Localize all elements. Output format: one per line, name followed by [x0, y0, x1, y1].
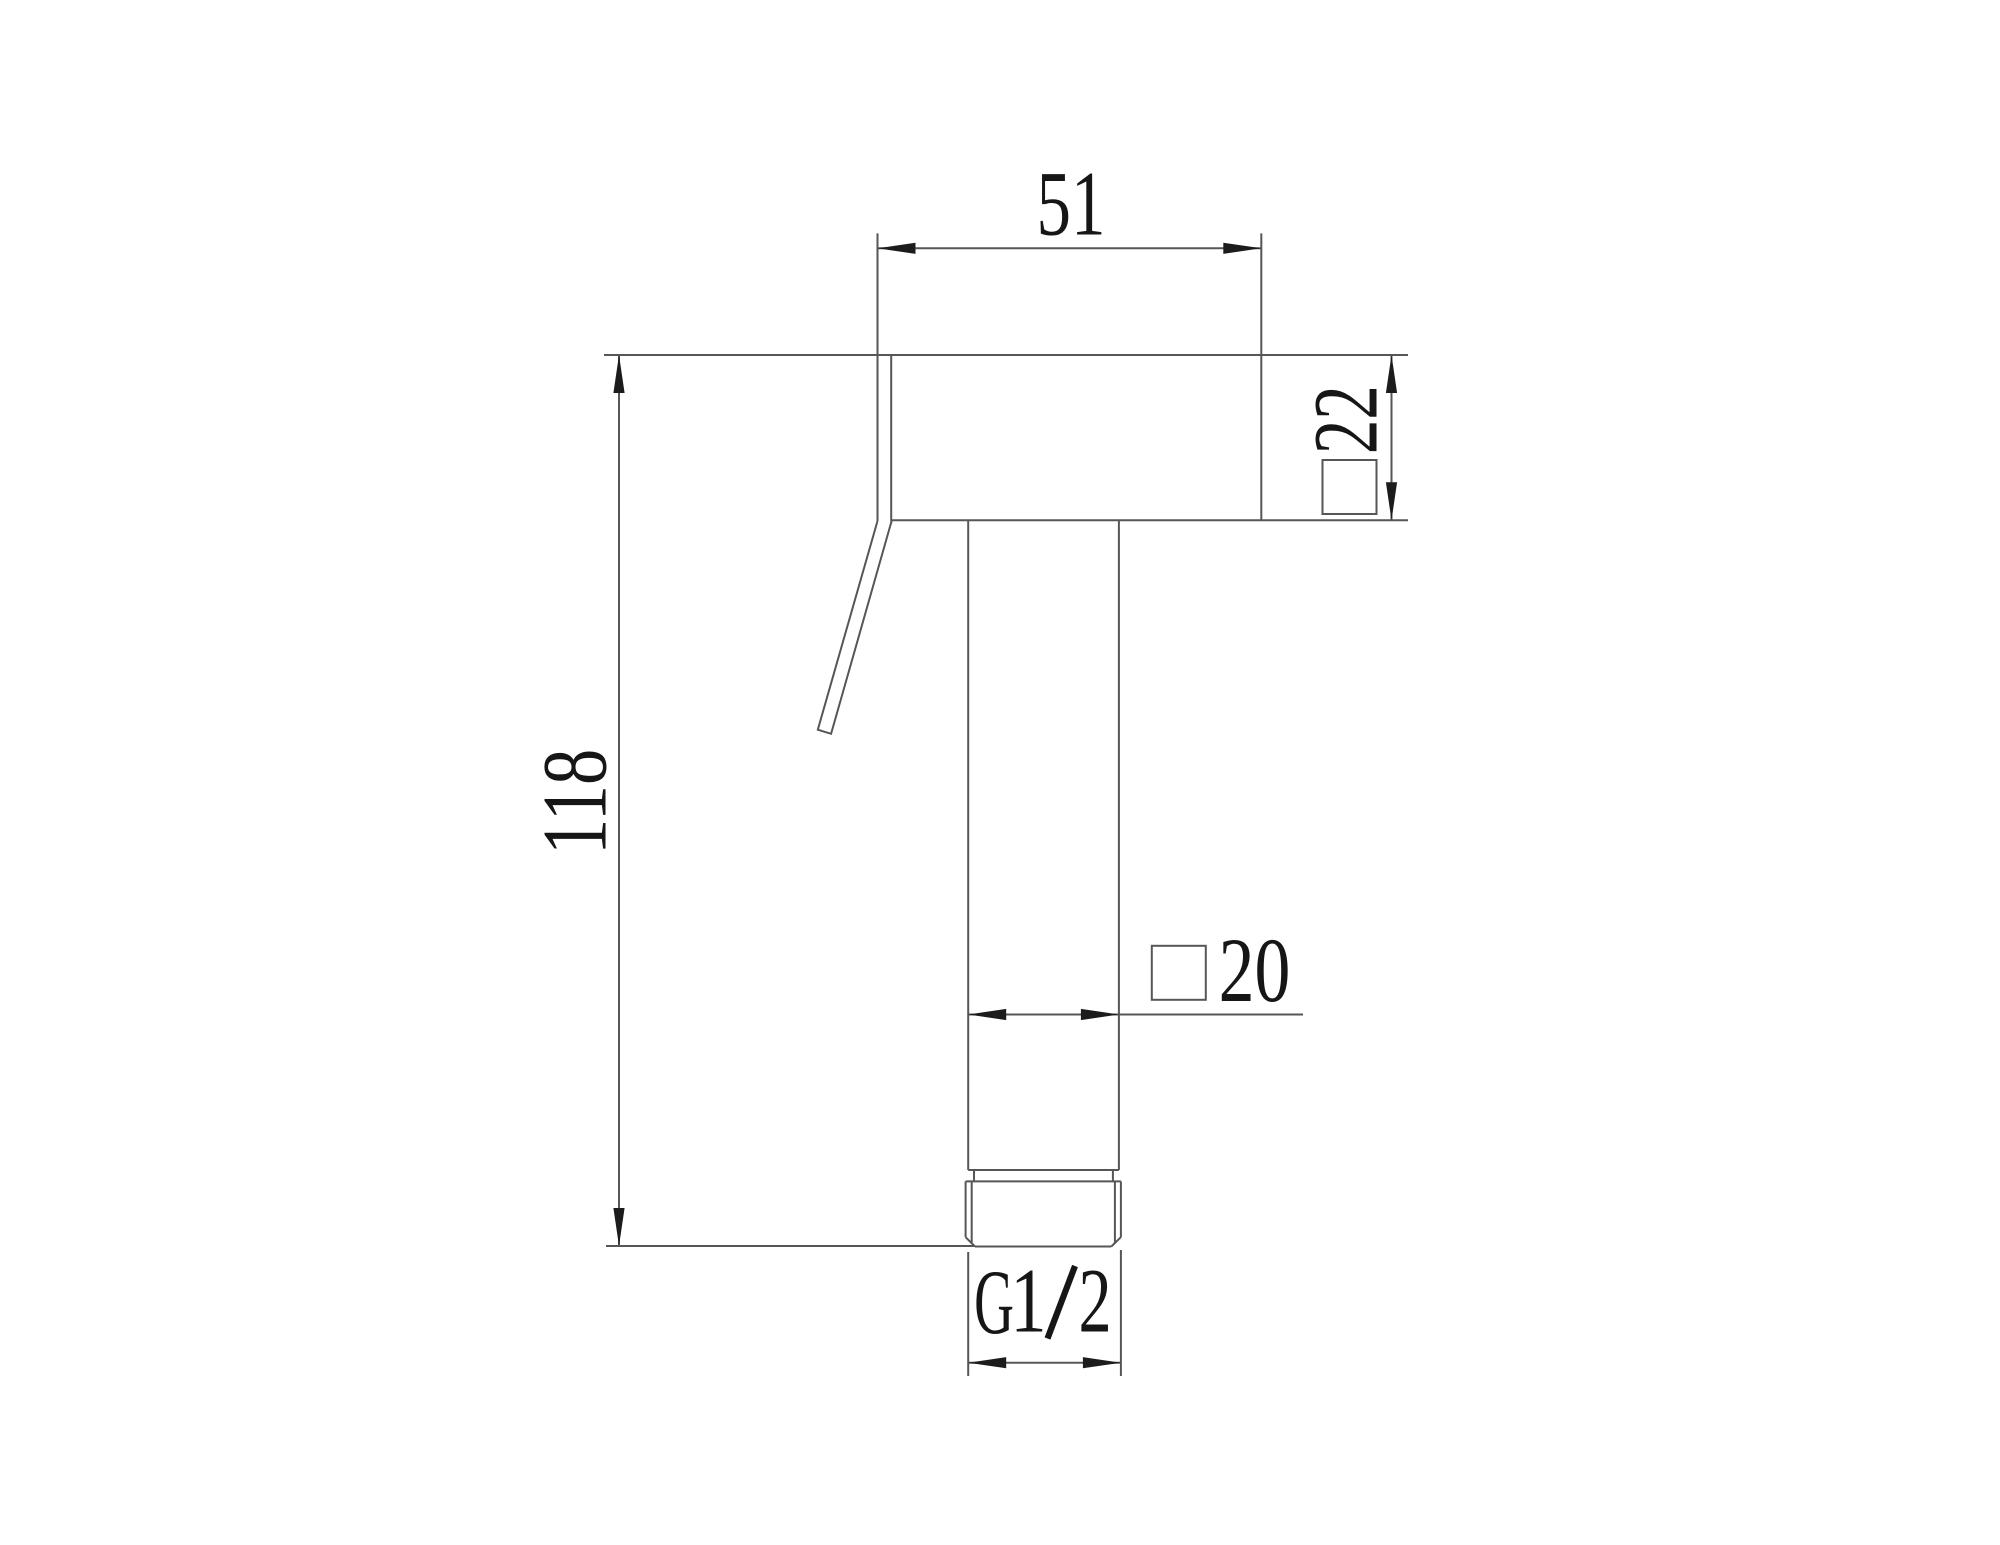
svg-text:2: 2	[1079, 1251, 1112, 1352]
svg-text:118: 118	[523, 749, 625, 855]
svg-text:1: 1	[1010, 1249, 1046, 1351]
svg-text:22: 22	[1295, 385, 1397, 454]
svg-text:20: 20	[1219, 918, 1291, 1021]
svg-text:G: G	[974, 1252, 1014, 1354]
svg-text:51: 51	[1037, 153, 1106, 255]
